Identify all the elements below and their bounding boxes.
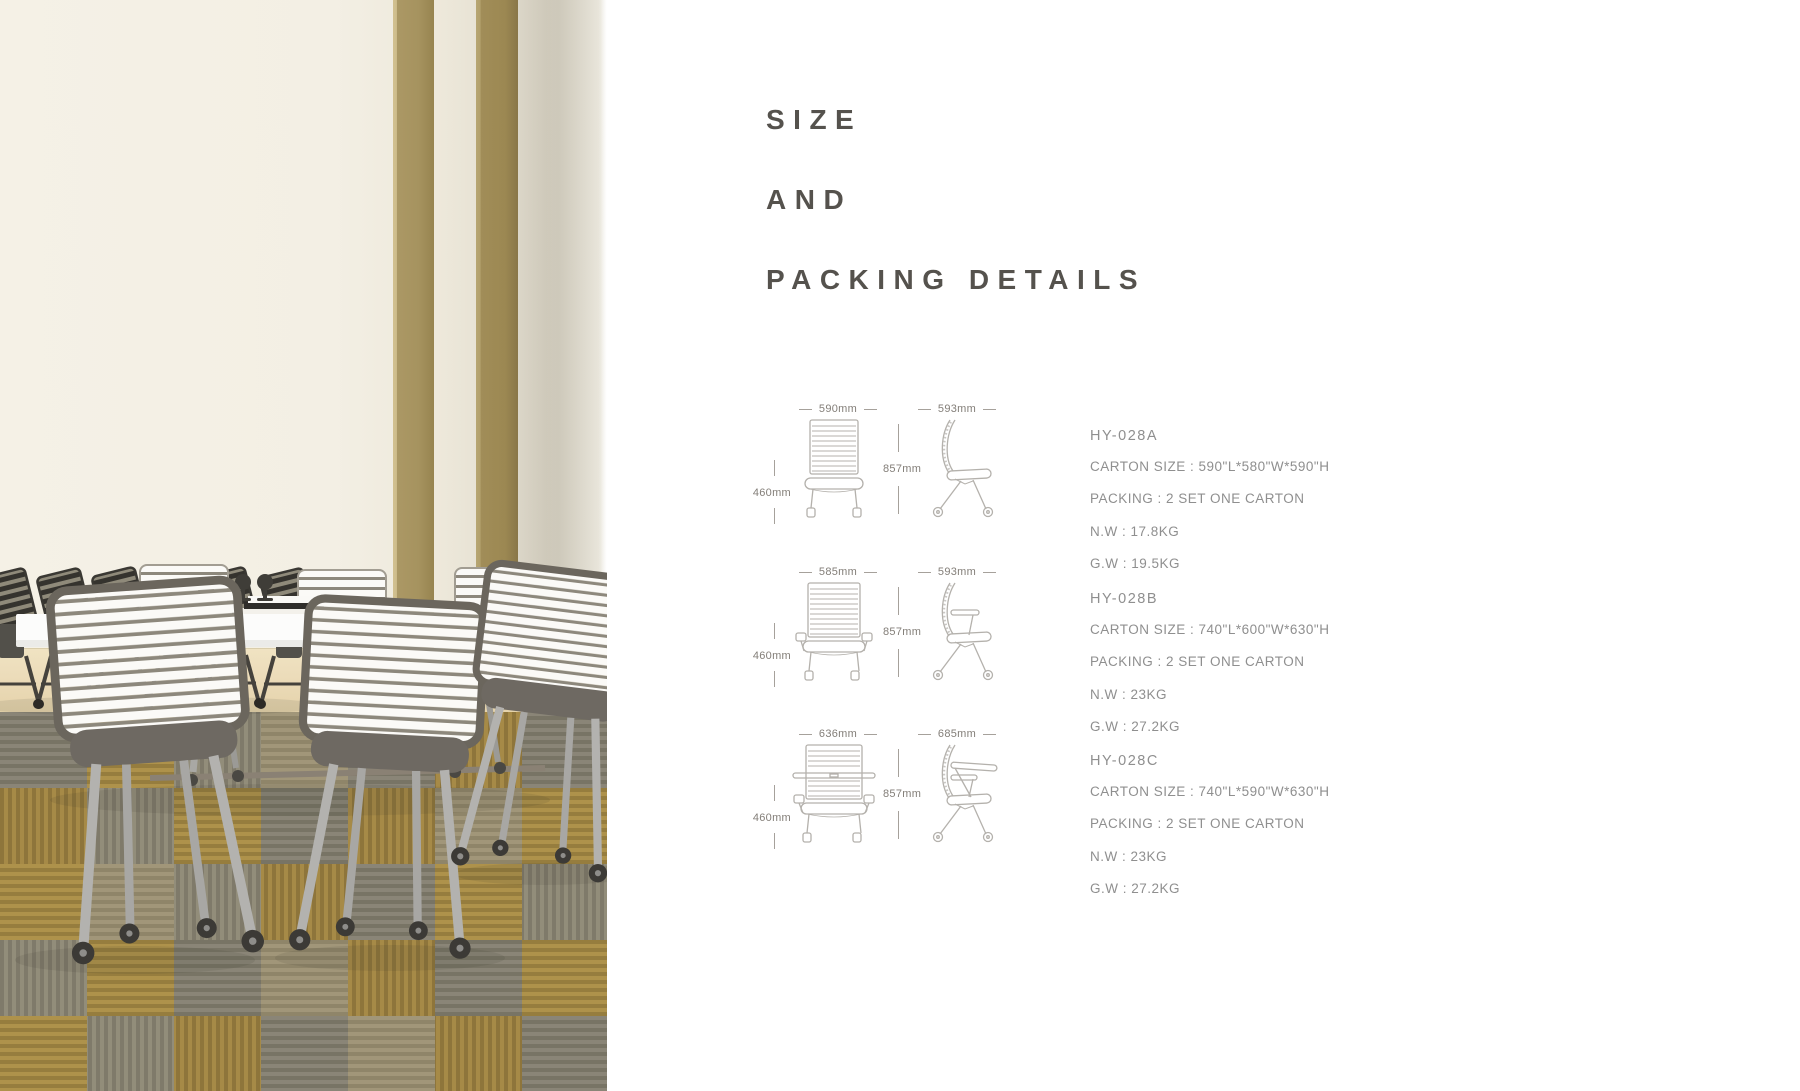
side-width-dimension: 593mm [902, 402, 1012, 416]
dimension-value: 585mm [819, 565, 857, 579]
dimension-dash [898, 587, 899, 615]
chair-front-view-drawing [790, 418, 878, 520]
front-width-dimension: 636mm [783, 727, 893, 741]
chair-side-view-drawing [915, 581, 999, 683]
dimension-dash [774, 785, 775, 801]
dimension-dash [799, 409, 812, 410]
front-width-dimension: 585mm [783, 565, 893, 579]
dimension-dash [918, 572, 931, 573]
spec-packing: PACKING : 2 SET ONE CARTON [1090, 816, 1305, 831]
dimension-dash [774, 623, 775, 639]
chair-side-view-drawing [915, 743, 999, 845]
product-code: HY-028A [1090, 428, 1158, 444]
seat-height-dimension: 460mm [747, 486, 791, 500]
dimension-value: 636mm [819, 727, 857, 741]
overall-height-dimension: 857mm [883, 625, 921, 639]
spec-net-weight: N.W : 23KG [1090, 687, 1167, 702]
spec-gross-weight: G.W : 27.2KG [1090, 881, 1180, 896]
dimension-dash [898, 749, 899, 777]
dimension-value: 593mm [938, 565, 976, 579]
dimension-dash [774, 508, 775, 524]
spec-net-weight: N.W : 17.8KG [1090, 524, 1179, 539]
dimension-dash [864, 572, 877, 573]
showroom-furniture [0, 0, 607, 1091]
product-specs: CARTON SIZE : 590"L*580"W*590"H PACKING … [1090, 459, 1329, 572]
product-specs: CARTON SIZE : 740"L*590"W*630"H PACKING … [1090, 784, 1329, 897]
product-block-hy028b: 585mm 593mm [745, 559, 1505, 711]
overall-height-dimension: 857mm [883, 462, 921, 476]
dimension-dash [864, 409, 877, 410]
training-chairs [47, 562, 607, 965]
spec-carton-size: CARTON SIZE : 590"L*580"W*590"H [1090, 459, 1329, 474]
catalog-page: SIZE AND PACKING DETAILS 590mm 593mm [0, 0, 1800, 1091]
side-width-dimension: 593mm [902, 565, 1012, 579]
dimension-dash [864, 734, 877, 735]
dimension-dash [774, 833, 775, 849]
overall-height-dimension: 857mm [883, 787, 921, 801]
dimension-dash [774, 460, 775, 476]
chair-side-view-drawing [915, 418, 999, 520]
dimension-dash [774, 671, 775, 687]
page-title: SIZE AND PACKING DETAILS [766, 100, 1146, 300]
product-code: HY-028B [1090, 591, 1158, 607]
dimension-value: 590mm [819, 402, 857, 416]
dimension-dash [983, 409, 996, 410]
spec-carton-size: CARTON SIZE : 740"L*590"W*630"H [1090, 784, 1329, 799]
dimension-dash [898, 486, 899, 514]
spec-packing: PACKING : 2 SET ONE CARTON [1090, 654, 1305, 669]
spec-net-weight: N.W : 23KG [1090, 849, 1167, 864]
product-specs: CARTON SIZE : 740"L*600"W*630"H PACKING … [1090, 622, 1329, 735]
dimension-dash [983, 572, 996, 573]
dimension-dash [918, 734, 931, 735]
front-width-dimension: 590mm [783, 402, 893, 416]
dimension-dash [898, 424, 899, 452]
product-block-hy028a: 590mm 593mm [745, 396, 1505, 548]
product-code: HY-028C [1090, 753, 1159, 769]
dimension-dash [983, 734, 996, 735]
dimension-value: 685mm [938, 727, 976, 741]
dimension-dash [799, 734, 812, 735]
dimension-dash [918, 409, 931, 410]
dimension-dash [799, 572, 812, 573]
spec-packing: PACKING : 2 SET ONE CARTON [1090, 491, 1305, 506]
seat-height-dimension: 460mm [747, 649, 791, 663]
dimension-value: 593mm [938, 402, 976, 416]
dimension-dash [898, 811, 899, 839]
seat-height-dimension: 460mm [747, 811, 791, 825]
chair-front-view-drawing [790, 743, 878, 845]
dimension-dash [898, 649, 899, 677]
spec-carton-size: CARTON SIZE : 740"L*600"W*630"H [1090, 622, 1329, 637]
chair-front-view-drawing [790, 581, 878, 683]
showroom-photo [0, 0, 607, 1091]
side-width-dimension: 685mm [902, 727, 1012, 741]
product-block-hy028c: 636mm 685mm [745, 721, 1505, 873]
